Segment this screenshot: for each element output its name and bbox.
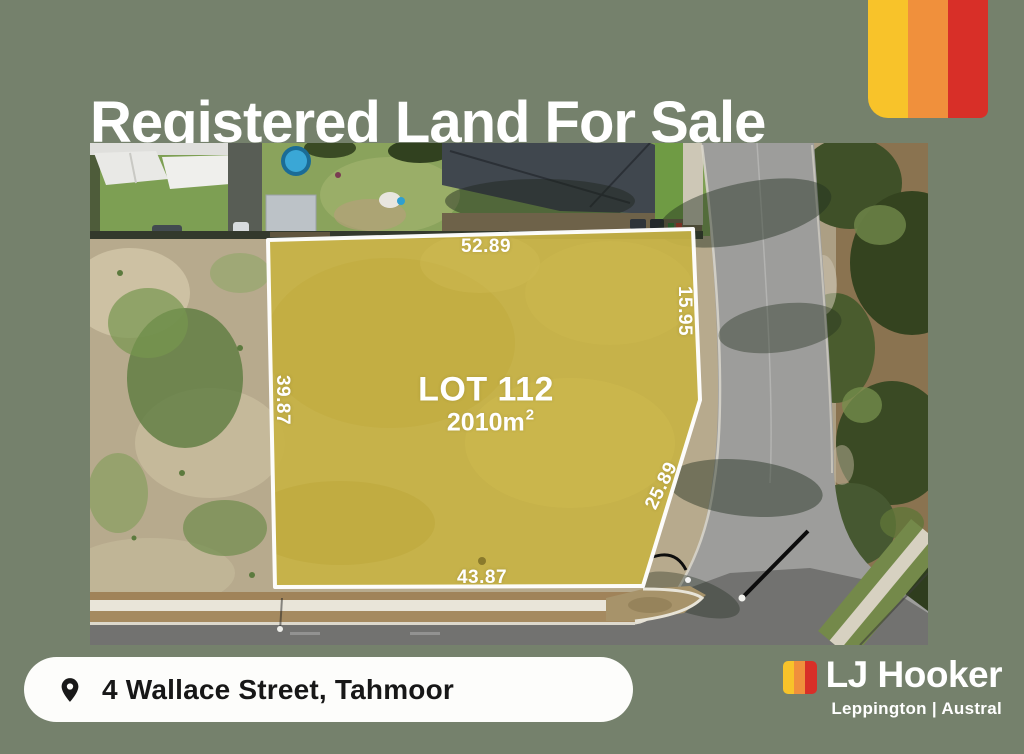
stripe-red — [805, 661, 816, 694]
houses-group — [90, 143, 710, 239]
stripe-orange — [794, 661, 805, 694]
lot-number-label: LOT 112 — [418, 371, 554, 410]
stripe-yellow — [783, 661, 794, 694]
measurement-left: 39.87 — [271, 375, 293, 425]
brand-stripes-icon — [783, 661, 817, 694]
address-text: 4 Wallace Street, Tahmoor — [102, 674, 454, 706]
brand-name: LJ Hooker — [826, 656, 1002, 693]
stripe-red — [948, 0, 988, 118]
stripe-yellow — [868, 0, 908, 118]
stripe-orange — [908, 0, 948, 118]
lot-area-exponent: 2 — [526, 406, 534, 423]
measurement-bottom: 43.87 — [457, 567, 507, 589]
measurement-top: 52.89 — [461, 236, 511, 258]
measurement-right-upper: 15.95 — [673, 286, 695, 336]
aerial-photo: 52.89 39.87 15.95 25.89 43.87 LOT 112 20… — [90, 143, 928, 645]
address-bar: 4 Wallace Street, Tahmoor — [24, 657, 633, 722]
lot-area-label: 2010m2 — [447, 408, 533, 437]
brand-stripes-icon — [868, 0, 988, 118]
location-pin-icon — [56, 672, 84, 708]
lot-area-value: 2010m — [447, 409, 525, 437]
brand-office: Leppington | Austral — [831, 699, 1002, 719]
ljhooker-logo: LJ Hooker Leppington | Austral — [783, 656, 1002, 719]
